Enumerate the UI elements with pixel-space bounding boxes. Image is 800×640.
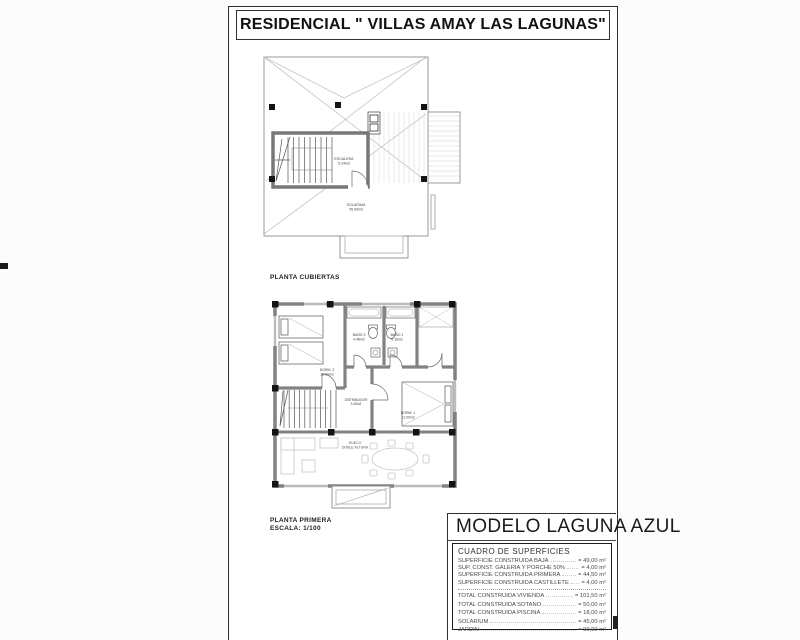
surface-label: TOTAL CONSTRUIDA VIVIENDA <box>458 592 544 600</box>
surfaces-group-1: SUPERFICIE CONSTRUIDA BAJA = 49,00 m² SU… <box>458 558 606 587</box>
dotted-leader <box>567 568 579 569</box>
dorm1-label: DORM. 1 <box>401 411 416 415</box>
solarium-label: SOLARIUM <box>347 203 366 207</box>
dotted-leader <box>542 613 576 614</box>
dorm2-label: DORM. 2 <box>320 368 335 372</box>
residencial-title: RESIDENCIAL " VILLAS AMAY LAS LAGUNAS" <box>240 16 606 34</box>
surface-label: SUPERFICIE CONSTRUIDA CASTILLETE <box>458 580 569 587</box>
surface-row: SUPERFICIE CONSTRUIDA CASTILLETE = 4,00 … <box>458 580 606 587</box>
first-floor-caption-scale: ESCALA: 1/100 <box>270 525 332 533</box>
surface-label: SOLARIUM <box>458 618 488 626</box>
cartouche-top-rule <box>447 513 616 514</box>
surface-label: SUPERFICIE CONSTRUIDA BAJA <box>458 558 549 565</box>
dotted-leader <box>562 575 576 576</box>
roof-plan-drawing: ESCALERA 5.24m2 SOLARIUM 45.00m2 <box>256 50 468 265</box>
dorm2-area: 12.00m2 <box>320 373 334 377</box>
surfaces-group-2: TOTAL CONSTRUIDA VIVIENDA = 101,50 m² TO… <box>458 592 606 634</box>
roof-plan-caption-text: PLANTA CUBIERTAS <box>270 274 340 281</box>
surface-row: TOTAL CONSTRUIDA PISCINA = 18,00 m² <box>458 609 606 617</box>
pergola-hatch <box>428 116 460 176</box>
surface-value: = 44,50 m² <box>578 572 606 579</box>
solarium-area: 45.00m2 <box>349 208 363 212</box>
escalera-area: 5.24m2 <box>338 162 350 166</box>
drawing-canvas: RESIDENCIAL " VILLAS AMAY LAS LAGUNAS" <box>0 0 800 640</box>
surface-label: TOTAL CONSTRUIDA SOTANO <box>458 601 541 609</box>
balcony <box>332 486 390 508</box>
dotted-leader <box>546 596 573 597</box>
bano2-label: BAÑO 2 <box>353 332 366 337</box>
dotted-leader <box>571 583 580 584</box>
surface-label: SUPERFICIE CONSTRUIDA PRIMERA <box>458 572 560 579</box>
first-floor-caption: PLANTA PRIMERA ESCALA: 1/100 <box>270 517 332 533</box>
planter <box>340 236 408 258</box>
surface-value: = 49,00 m² <box>578 558 606 565</box>
border-mark <box>613 616 618 629</box>
surface-label: TOTAL CONSTRUIDA PISCINA <box>458 609 540 617</box>
surface-row: TOTAL CONSTRUIDA SOTANO = 50,00 m² <box>458 601 606 609</box>
surface-value: = 18,00 m² <box>578 609 606 617</box>
dorm1-area: 12.00m2 <box>401 416 415 420</box>
cartouche-divider <box>447 513 448 640</box>
dotted-leader <box>543 605 576 606</box>
dotted-leader <box>481 630 576 631</box>
surface-value: = 45,00 m² <box>578 618 606 626</box>
surface-value: = 50,00 m² <box>578 601 606 609</box>
stair-room <box>273 133 368 187</box>
first-floor-caption-line1: PLANTA PRIMERA <box>270 517 332 525</box>
deck-hatch <box>374 112 424 183</box>
surfaces-heading: CUADRO DE SUPERFICIES <box>458 547 606 556</box>
chimney <box>368 112 380 134</box>
surface-row: SUPERFICIE CONSTRUIDA PRIMERA = 44,50 m² <box>458 572 606 579</box>
dotted-leader <box>551 561 577 562</box>
surface-row: TOTAL CONSTRUIDA VIVIENDA = 101,50 m² <box>458 592 606 600</box>
roof-plan-caption: PLANTA CUBIERTAS <box>270 274 340 282</box>
cartouche-bottom-rule <box>447 540 616 541</box>
bano1-area: 4.15m2 <box>391 338 403 342</box>
surfaces-table: CUADRO DE SUPERFICIES SUPERFICIE CONSTRU… <box>452 543 612 630</box>
title-box: RESIDENCIAL " VILLAS AMAY LAS LAGUNAS" <box>236 10 610 40</box>
escalera-label: ESCALERA <box>334 157 354 161</box>
surface-value: = 90,00 m² <box>578 626 606 634</box>
surface-value: = 101,50 m² <box>575 592 606 600</box>
surface-row: JARDIN = 90,00 m² <box>458 626 606 634</box>
first-floor-plan-drawing: DORM. 2 12.00m2 BAÑO 2 4.48m2 BAÑO 1 4.1… <box>258 292 470 514</box>
table-separator <box>458 589 606 590</box>
hueco-label: HUECO <box>349 441 362 445</box>
distribuidor-area: 3.45m2 <box>351 402 362 406</box>
surface-label: SUP. CONST. GALERIA Y PORCHE 50% <box>458 565 565 572</box>
bano1-label: BAÑO 1 <box>391 332 404 337</box>
hueco-area: DOBLE ALTURA <box>342 446 369 450</box>
page-edge-mark <box>0 263 8 269</box>
surface-row: SUPERFICIE CONSTRUIDA BAJA = 49,00 m² <box>458 558 606 565</box>
surface-row: SUP. CONST. GALERIA Y PORCHE 50% = 4,00 … <box>458 565 606 572</box>
model-title: MODELO LAGUNA AZUL <box>456 516 612 538</box>
surface-value: = 4,00 m² <box>581 580 606 587</box>
surface-value: = 4,00 m² <box>581 565 606 572</box>
surface-row: SOLARIUM = 45,00 m² <box>458 618 606 626</box>
dotted-leader <box>490 622 576 623</box>
surface-label: JARDIN <box>458 626 479 634</box>
bano2-area: 4.48m2 <box>353 338 365 342</box>
drainpipe <box>431 195 435 229</box>
